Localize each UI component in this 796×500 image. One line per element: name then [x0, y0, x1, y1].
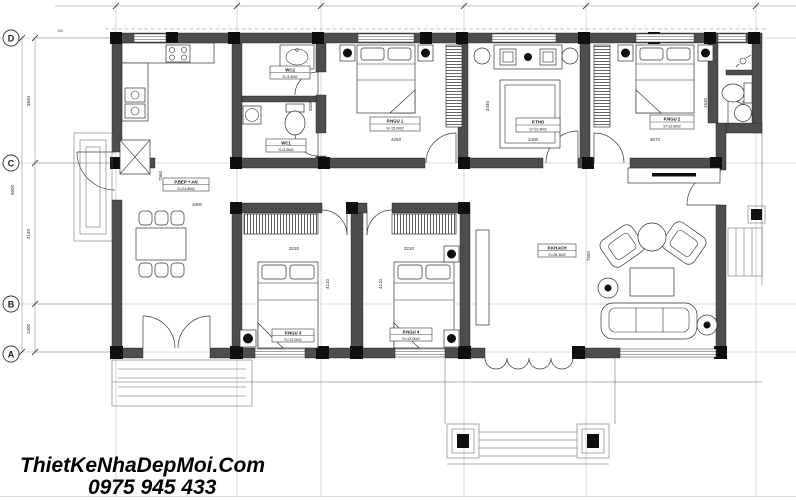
room-area: S=3.9M2	[278, 148, 293, 152]
shaft-icon	[120, 140, 150, 174]
window-living	[620, 349, 716, 357]
drawing-sheet: D C B A	[0, 0, 796, 500]
bedroom3	[240, 214, 318, 348]
dim-wc3-depth: 1530	[703, 97, 708, 108]
lamp-icon	[447, 334, 456, 343]
sofa-icon	[601, 303, 697, 339]
bed1-icon	[357, 45, 415, 113]
room-label-kitchen: P.BEP + AN S=24.8M2	[163, 178, 209, 191]
dining-table	[136, 211, 186, 277]
floor-plan-svg: D C B A	[0, 0, 796, 500]
dim-bed1-depth: 3500	[308, 100, 313, 111]
dim-living-depth: 7580	[586, 250, 591, 261]
grid-label-c: C	[8, 159, 15, 169]
door-bedroom3	[322, 210, 347, 235]
watermark: ThietKeNhaDepMoi.Com 0975 945 433	[20, 454, 265, 499]
electrical-panel-icon	[748, 206, 765, 223]
room-name: P.NGU 3	[285, 330, 302, 335]
wc3	[722, 55, 752, 122]
room-name: P.BEP + AN	[174, 179, 197, 184]
dim-bed1-width: 4250	[391, 137, 402, 142]
room-name: P.NGU 2	[664, 117, 681, 122]
dim-bed3-depth: 4110	[325, 279, 330, 289]
room-name: P.NGU 4	[403, 329, 420, 334]
steps-front	[447, 432, 609, 464]
dim-bed4-depth: 4110	[378, 279, 383, 289]
dim-bed4-width: 3220	[404, 246, 415, 251]
stool-icon	[474, 48, 490, 64]
stove-icon	[166, 45, 190, 62]
dim-left-b-a: 1300	[26, 323, 31, 334]
door-bedroom4	[367, 210, 392, 235]
dim-altar-depth: 3440	[485, 100, 490, 111]
dim-left-overall: 9500	[10, 184, 15, 195]
bed2-icon	[636, 45, 694, 113]
dim-altar-width: 3400	[528, 137, 539, 142]
grid-label-a: A	[8, 350, 15, 360]
window-bedroom1	[358, 34, 414, 42]
room-area: S=12.9M2	[529, 128, 546, 132]
stool-icon	[562, 48, 578, 64]
hall-console-icon	[476, 230, 489, 325]
wardrobe-icon	[446, 45, 462, 127]
room-label-living: P.KHACH S=28.3M2	[538, 244, 576, 257]
porch-column	[577, 424, 609, 458]
plant-icon	[598, 278, 618, 298]
wc3-sink-icon	[735, 101, 752, 122]
door-main-folding	[485, 358, 573, 369]
kitchen-dining	[74, 43, 214, 277]
room-name: WC2	[285, 67, 295, 72]
altar-cabinet-icon	[494, 45, 562, 69]
room-label-bedroom1: P.NGU 1 S=15.0M2	[370, 117, 420, 131]
wc2-sink-icon	[280, 45, 314, 69]
grid-label-b: B	[8, 300, 15, 310]
bedroom2	[594, 45, 713, 127]
wc3-toilet-icon	[722, 83, 752, 103]
steps-left	[112, 360, 252, 406]
lamp-icon	[421, 49, 430, 58]
door-foyer-double	[143, 316, 210, 348]
dim-kitchen-depth: 7560	[158, 170, 163, 181]
room-name: P.KHACH	[547, 245, 566, 250]
room-label-bedroom2: P.NGU 2 S=12.6M2	[650, 115, 694, 129]
grid-bubble-c: C	[3, 155, 19, 171]
shower-icon	[736, 55, 751, 67]
room-label-wc1: WC1 S=3.9M2	[266, 139, 306, 152]
door-bedroom2	[594, 133, 624, 163]
armchair-icon	[597, 222, 646, 270]
room-area: S=24.8M2	[177, 187, 194, 191]
armchair-icon	[659, 219, 708, 267]
lamp-icon	[701, 49, 710, 58]
lamp-icon	[343, 49, 352, 58]
room-label-altar: P.THO S=12.9M2	[516, 118, 560, 132]
coffee-table-icon	[630, 268, 674, 296]
lamp-icon	[621, 49, 630, 58]
room-name: P.NGU 1	[387, 119, 404, 124]
dim-left-d-c: 3640	[26, 95, 31, 106]
room-area: S=3.9M2	[282, 75, 297, 79]
lamp-icon	[447, 250, 456, 259]
wc1-toilet-icon	[285, 104, 305, 135]
dim-bed2-width: 3670	[650, 137, 661, 142]
window-altar-room	[492, 34, 556, 42]
porch-outline	[445, 358, 615, 424]
grid-bubble-b: B	[3, 296, 19, 312]
door-side-left	[77, 152, 115, 190]
room-area: S=28.3M2	[548, 253, 565, 257]
washer-icon	[243, 106, 261, 124]
room-area: S=15.0M2	[386, 127, 403, 131]
grid-label-d: D	[8, 34, 15, 44]
wardrobe-icon	[392, 214, 456, 234]
bedroom1	[340, 45, 462, 127]
wardrobe-icon	[244, 214, 318, 234]
round-table-icon	[638, 223, 666, 251]
grid-bubble-a: A	[3, 346, 19, 362]
room-label-wc2: WC2 S=3.9M2	[270, 66, 310, 79]
room-label-bedroom4: P.NGU 4 S=13.0M2	[390, 328, 432, 341]
room-name: P.THO	[532, 120, 545, 125]
room-area: S=13.0M2	[402, 337, 419, 341]
door-bedroom1	[426, 133, 456, 163]
dim-bed3-width: 3220	[289, 246, 300, 251]
window-kitchen	[134, 34, 166, 42]
window-bedroom4	[395, 349, 445, 357]
tv-console-icon	[628, 168, 720, 183]
watermark-site: ThietKeNhaDepMoi.Com	[20, 454, 265, 477]
watermark-phone: 0975 945 433	[88, 476, 217, 499]
window-bedroom3	[255, 349, 305, 357]
dim-kitchen-width: 1900	[192, 202, 203, 207]
lamp-icon	[243, 334, 253, 344]
living-room	[597, 168, 720, 339]
window-bedroom2	[636, 34, 694, 42]
room-area: S=12.6M2	[663, 125, 680, 129]
room-label-bedroom3: P.NGU 3 S=13.0M2	[272, 329, 314, 342]
side-landing-steps	[74, 133, 112, 241]
porch-column	[447, 424, 479, 458]
window-wc3	[718, 34, 746, 42]
dim-top-offset: 130	[57, 29, 63, 33]
room-area: S=13.0M2	[284, 338, 301, 342]
room-name: WC1	[281, 140, 291, 145]
altar-room	[474, 45, 578, 148]
dim-left-c-b: 4140	[26, 228, 31, 239]
plant-icon	[697, 315, 717, 335]
wardrobe-icon	[594, 45, 610, 127]
grid-bubble-d: D	[3, 30, 19, 46]
wc-block	[243, 45, 314, 135]
